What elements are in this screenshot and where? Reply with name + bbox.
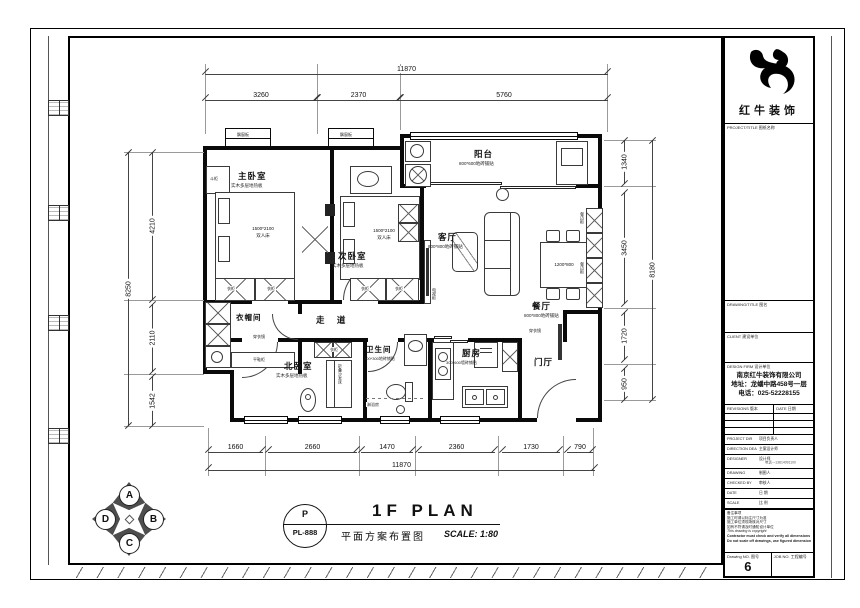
- window: [244, 416, 288, 424]
- dim-top: 2370: [317, 100, 400, 101]
- drawing-stamp: P PL-888: [283, 504, 327, 548]
- extension-line: [124, 374, 204, 375]
- rednow-logo-icon: [745, 44, 797, 100]
- laundry-sink-basin: [410, 144, 424, 158]
- cloak-cabinet-knob: [211, 351, 223, 363]
- wash-basin-icon: [357, 171, 379, 187]
- wall: [230, 338, 242, 342]
- sofa-cushion-line: [485, 240, 510, 241]
- brand-name: 红牛装饰: [725, 102, 813, 118]
- room-name-living: 客厅: [438, 231, 457, 243]
- dim-left: 4210: [152, 152, 153, 300]
- revisions-table: REVISIONS 版本 DATE 日期: [725, 404, 813, 434]
- room-finish-kitchen: 300*600墙砖铺贴: [446, 360, 477, 366]
- sofa-back-line: [510, 213, 511, 295]
- sofa-cushion-line: [485, 268, 510, 269]
- sideboard-cabinet: [586, 283, 603, 308]
- dining-chair: [546, 230, 560, 242]
- extension-line: [604, 400, 656, 401]
- sofa: [484, 212, 520, 296]
- wall: [330, 146, 334, 304]
- room-finish-second: 实木多层地热板: [332, 263, 364, 269]
- wardrobe-label: 衣柜: [226, 286, 236, 291]
- wall: [288, 300, 342, 304]
- window: [440, 416, 480, 424]
- stamp-number: PL-888: [284, 528, 326, 537]
- wardrobe-label: 衣柜: [360, 286, 370, 291]
- bed-type-label: 双人床: [235, 233, 291, 239]
- tv-cabinet-label: 电视柜: [432, 288, 436, 300]
- company-address: 地址：龙蟠中路458号一层: [725, 380, 813, 389]
- mirror-label: 穿衣镜: [252, 334, 266, 339]
- person-row-en: DIRECTION DEA: [727, 447, 757, 451]
- right-margin-line: [831, 36, 832, 578]
- dressing-mirror: [558, 324, 562, 360]
- dim-bottom: 1470: [361, 452, 413, 453]
- washing-machine-drum: [409, 166, 427, 184]
- floor-vase-detail: [305, 394, 311, 400]
- dim-right-total: 8180: [652, 140, 653, 400]
- room-name-balcony: 阳台: [474, 148, 493, 160]
- design-firm-label: DESIGN FIRM 设计单位: [725, 363, 813, 371]
- sideboard-cabinet: [586, 258, 603, 283]
- room-finish-north: 实木多层地热板: [276, 373, 308, 379]
- wall: [230, 370, 234, 422]
- room-name-north: 北卧室: [284, 360, 313, 372]
- dim-top: 3260: [205, 100, 317, 101]
- sideboard-label: 餐边柜: [580, 262, 584, 274]
- kitchen-sliding-door: [434, 336, 452, 339]
- title-block: 红牛装饰 PROJECT/TITLE 图纸名称 DRAWING/TITLE 图名…: [723, 36, 815, 578]
- floor-vase: [300, 388, 316, 412]
- margin-ref-box: [48, 428, 69, 444]
- bedside-cabinet: [398, 223, 419, 242]
- dining-chair: [566, 230, 580, 242]
- extension-line: [604, 308, 656, 309]
- shower-label: 淋浴房: [366, 402, 380, 407]
- extension-line: [604, 186, 656, 187]
- bay-window: [225, 128, 271, 147]
- margin-ref-box: [48, 315, 69, 331]
- dining-chair: [546, 288, 560, 300]
- room-name-master: 主卧室: [238, 170, 267, 182]
- mirror-label: 穿衣镜: [528, 328, 542, 333]
- margin-ref-box: [48, 100, 69, 116]
- person-row-cn: 审核人: [759, 481, 770, 486]
- dim-left-total: 8250: [128, 152, 129, 426]
- company-phone: 电话：025-52228155: [725, 389, 813, 398]
- pillow: [343, 202, 355, 227]
- sideboard-cabinet: [586, 233, 603, 258]
- extension-line: [124, 152, 204, 153]
- dim-bottom-total: 11870: [208, 470, 595, 471]
- toilet-tank: [405, 382, 413, 402]
- balcony-sliding-door: [500, 186, 576, 189]
- compass-letter-d: D: [95, 509, 116, 530]
- sideboard-cabinet: [586, 208, 603, 233]
- floor-drain: [396, 405, 405, 414]
- fridge-handle: [480, 348, 492, 349]
- extension-line: [124, 300, 204, 301]
- room-name-dining: 餐厅: [532, 300, 551, 312]
- wall: [518, 342, 522, 422]
- wardrobe-label: 衣柜: [394, 286, 404, 291]
- drawing-no-value: 6: [725, 559, 771, 574]
- person-row-en: DRAWING: [727, 471, 745, 475]
- cloak-cabinet: [205, 324, 231, 346]
- wall: [400, 134, 404, 188]
- person-row-cn: 比 例: [759, 501, 768, 506]
- room-name-hall: 门厅: [534, 356, 553, 368]
- room-finish-bath: 300*300地砖铺贴: [364, 356, 395, 362]
- chest-label: 斗柜: [209, 176, 219, 181]
- dim-top: 5760: [400, 100, 608, 101]
- dim-bottom: 2660: [268, 452, 357, 453]
- wall: [563, 310, 567, 342]
- cloak-cabinet: [205, 302, 231, 324]
- person-row-en: SCALE: [727, 501, 739, 505]
- pillow: [218, 198, 230, 224]
- shoe-cabinet-label: 平鞋柜: [252, 357, 266, 362]
- compass-letter-c: C: [119, 533, 140, 554]
- floor-plan-sheet: 红牛装饰 PROJECT/TITLE 图纸名称 DRAWING/TITLE 图名…: [0, 0, 860, 608]
- extension-line: [604, 140, 656, 141]
- note-line: Do not scale off drawings, use figured d…: [727, 539, 811, 544]
- sink-drain: [493, 395, 498, 400]
- person-row-en: DATE: [727, 491, 737, 495]
- designer-phone: 电话—13814091100: [765, 461, 796, 466]
- room-name-second: 次卧室: [338, 250, 367, 262]
- person-row-cn: 主案设计师: [759, 447, 778, 452]
- compass-letter-b: B: [143, 509, 164, 530]
- dim-bottom: 2360: [418, 452, 495, 453]
- compass-center: [125, 515, 135, 525]
- floor-lamp: [496, 188, 509, 201]
- bed-size-label: 1500*2100: [235, 226, 291, 231]
- company-name: 南京红牛装饰有限公司: [725, 371, 813, 380]
- plan-subtitle: 平面方案布置图: [341, 528, 425, 543]
- sofa-bed-line: [334, 361, 335, 407]
- extension-line: [124, 426, 204, 427]
- stove-burner: [438, 366, 448, 376]
- balcony-window: [410, 132, 578, 140]
- wall: [563, 310, 602, 314]
- bay-window: [328, 128, 374, 147]
- bay-window-label: 飘窗板: [236, 132, 250, 137]
- notes-block: 备注事项 施工时请以标注尺寸为准 施工单位须现场核对尺寸 如有不符请及时通知设计…: [725, 508, 813, 552]
- person-row-en: CHECKED BY: [727, 481, 752, 485]
- date-col-label: DATE 日期: [774, 405, 797, 413]
- dining-chair: [566, 288, 580, 300]
- sideboard-label: 餐边柜: [580, 212, 584, 224]
- dim-bottom: 790: [567, 452, 593, 453]
- wardrobe-label: 衣柜: [329, 347, 339, 352]
- room-finish-master: 实木多层地热板: [231, 183, 263, 189]
- note-line: Contractor must check and verify all dim…: [727, 534, 811, 539]
- balcony-sliding-door: [426, 182, 502, 185]
- pillow: [218, 236, 230, 262]
- dim-bottom: 1660: [208, 452, 263, 453]
- dim-right: 1720: [624, 312, 625, 360]
- person-row-cn: 项目负责人: [759, 437, 778, 442]
- extension-line: [604, 364, 656, 365]
- dim-top-total: 11870: [205, 74, 608, 75]
- revisions-label: REVISIONS 版本: [725, 405, 760, 413]
- dim-bottom: 1730: [502, 452, 560, 453]
- drawing-title-label: DRAWING/TITLE 图名: [725, 301, 813, 309]
- compass-letter-a: A: [119, 485, 140, 506]
- fridge-handle: [480, 352, 492, 353]
- wardrobe-label: 衣柜: [266, 286, 276, 291]
- drawing-number-row: Drawing NO. 图号 6 JOB NO. 工程编号: [725, 552, 813, 578]
- sofa-bed-label: 折叠沙发床: [338, 364, 342, 384]
- sink-drain: [472, 395, 477, 400]
- north-compass-icon: A B C D: [92, 482, 166, 556]
- room-name-cloak: 衣帽间: [236, 312, 262, 323]
- shower-divider: [366, 398, 426, 399]
- wall: [576, 418, 602, 422]
- person-row-cn: 日 期: [759, 491, 768, 496]
- dim-left: 2110: [152, 304, 153, 372]
- dim-right: 1340: [624, 140, 625, 184]
- room-name-corridor: 走 道: [316, 314, 350, 326]
- dim-left: 1542: [152, 376, 153, 426]
- balcony-cabinet-door: [561, 148, 583, 166]
- window: [298, 416, 342, 424]
- plan-title: 1F PLAN: [372, 501, 478, 521]
- bath-basin: [408, 340, 423, 352]
- margin-ref-box: [48, 205, 69, 221]
- window: [380, 416, 410, 424]
- dim-right: 950: [624, 368, 625, 400]
- bottom-hatch-strip: [70, 567, 720, 578]
- dim-right: 3450: [624, 192, 625, 304]
- plan-scale: SCALE: 1:80: [444, 529, 498, 539]
- client-label: CLIENT 建设单位: [725, 333, 813, 341]
- bedside-cabinet: [398, 204, 419, 223]
- door-cross-mark: [302, 212, 328, 267]
- room-finish-balcony: 800*600地砖铺贴: [459, 161, 494, 167]
- stamp-letter: P: [284, 509, 326, 519]
- project-title-label: PROJECT/TITLE 图纸名称: [725, 124, 813, 132]
- room-name-kitchen: 厨房: [462, 347, 481, 359]
- person-row-en: PROJECT DIR: [727, 437, 752, 441]
- tall-cabinet: [502, 342, 518, 372]
- person-row-en: DESIGNER: [727, 457, 747, 461]
- room-finish-dining: 800*800地砖铺贴: [524, 313, 559, 319]
- job-no-label: JOB NO. 工程编号: [772, 553, 809, 561]
- bay-window-label: 飘窗板: [339, 132, 353, 137]
- room-finish-living: 800*800地砖铺贴: [428, 244, 463, 250]
- person-row-cn: 制图人: [759, 471, 770, 476]
- tv-screen: [426, 248, 429, 296]
- room-name-bath: 卫生间: [366, 344, 392, 355]
- wall: [298, 300, 302, 314]
